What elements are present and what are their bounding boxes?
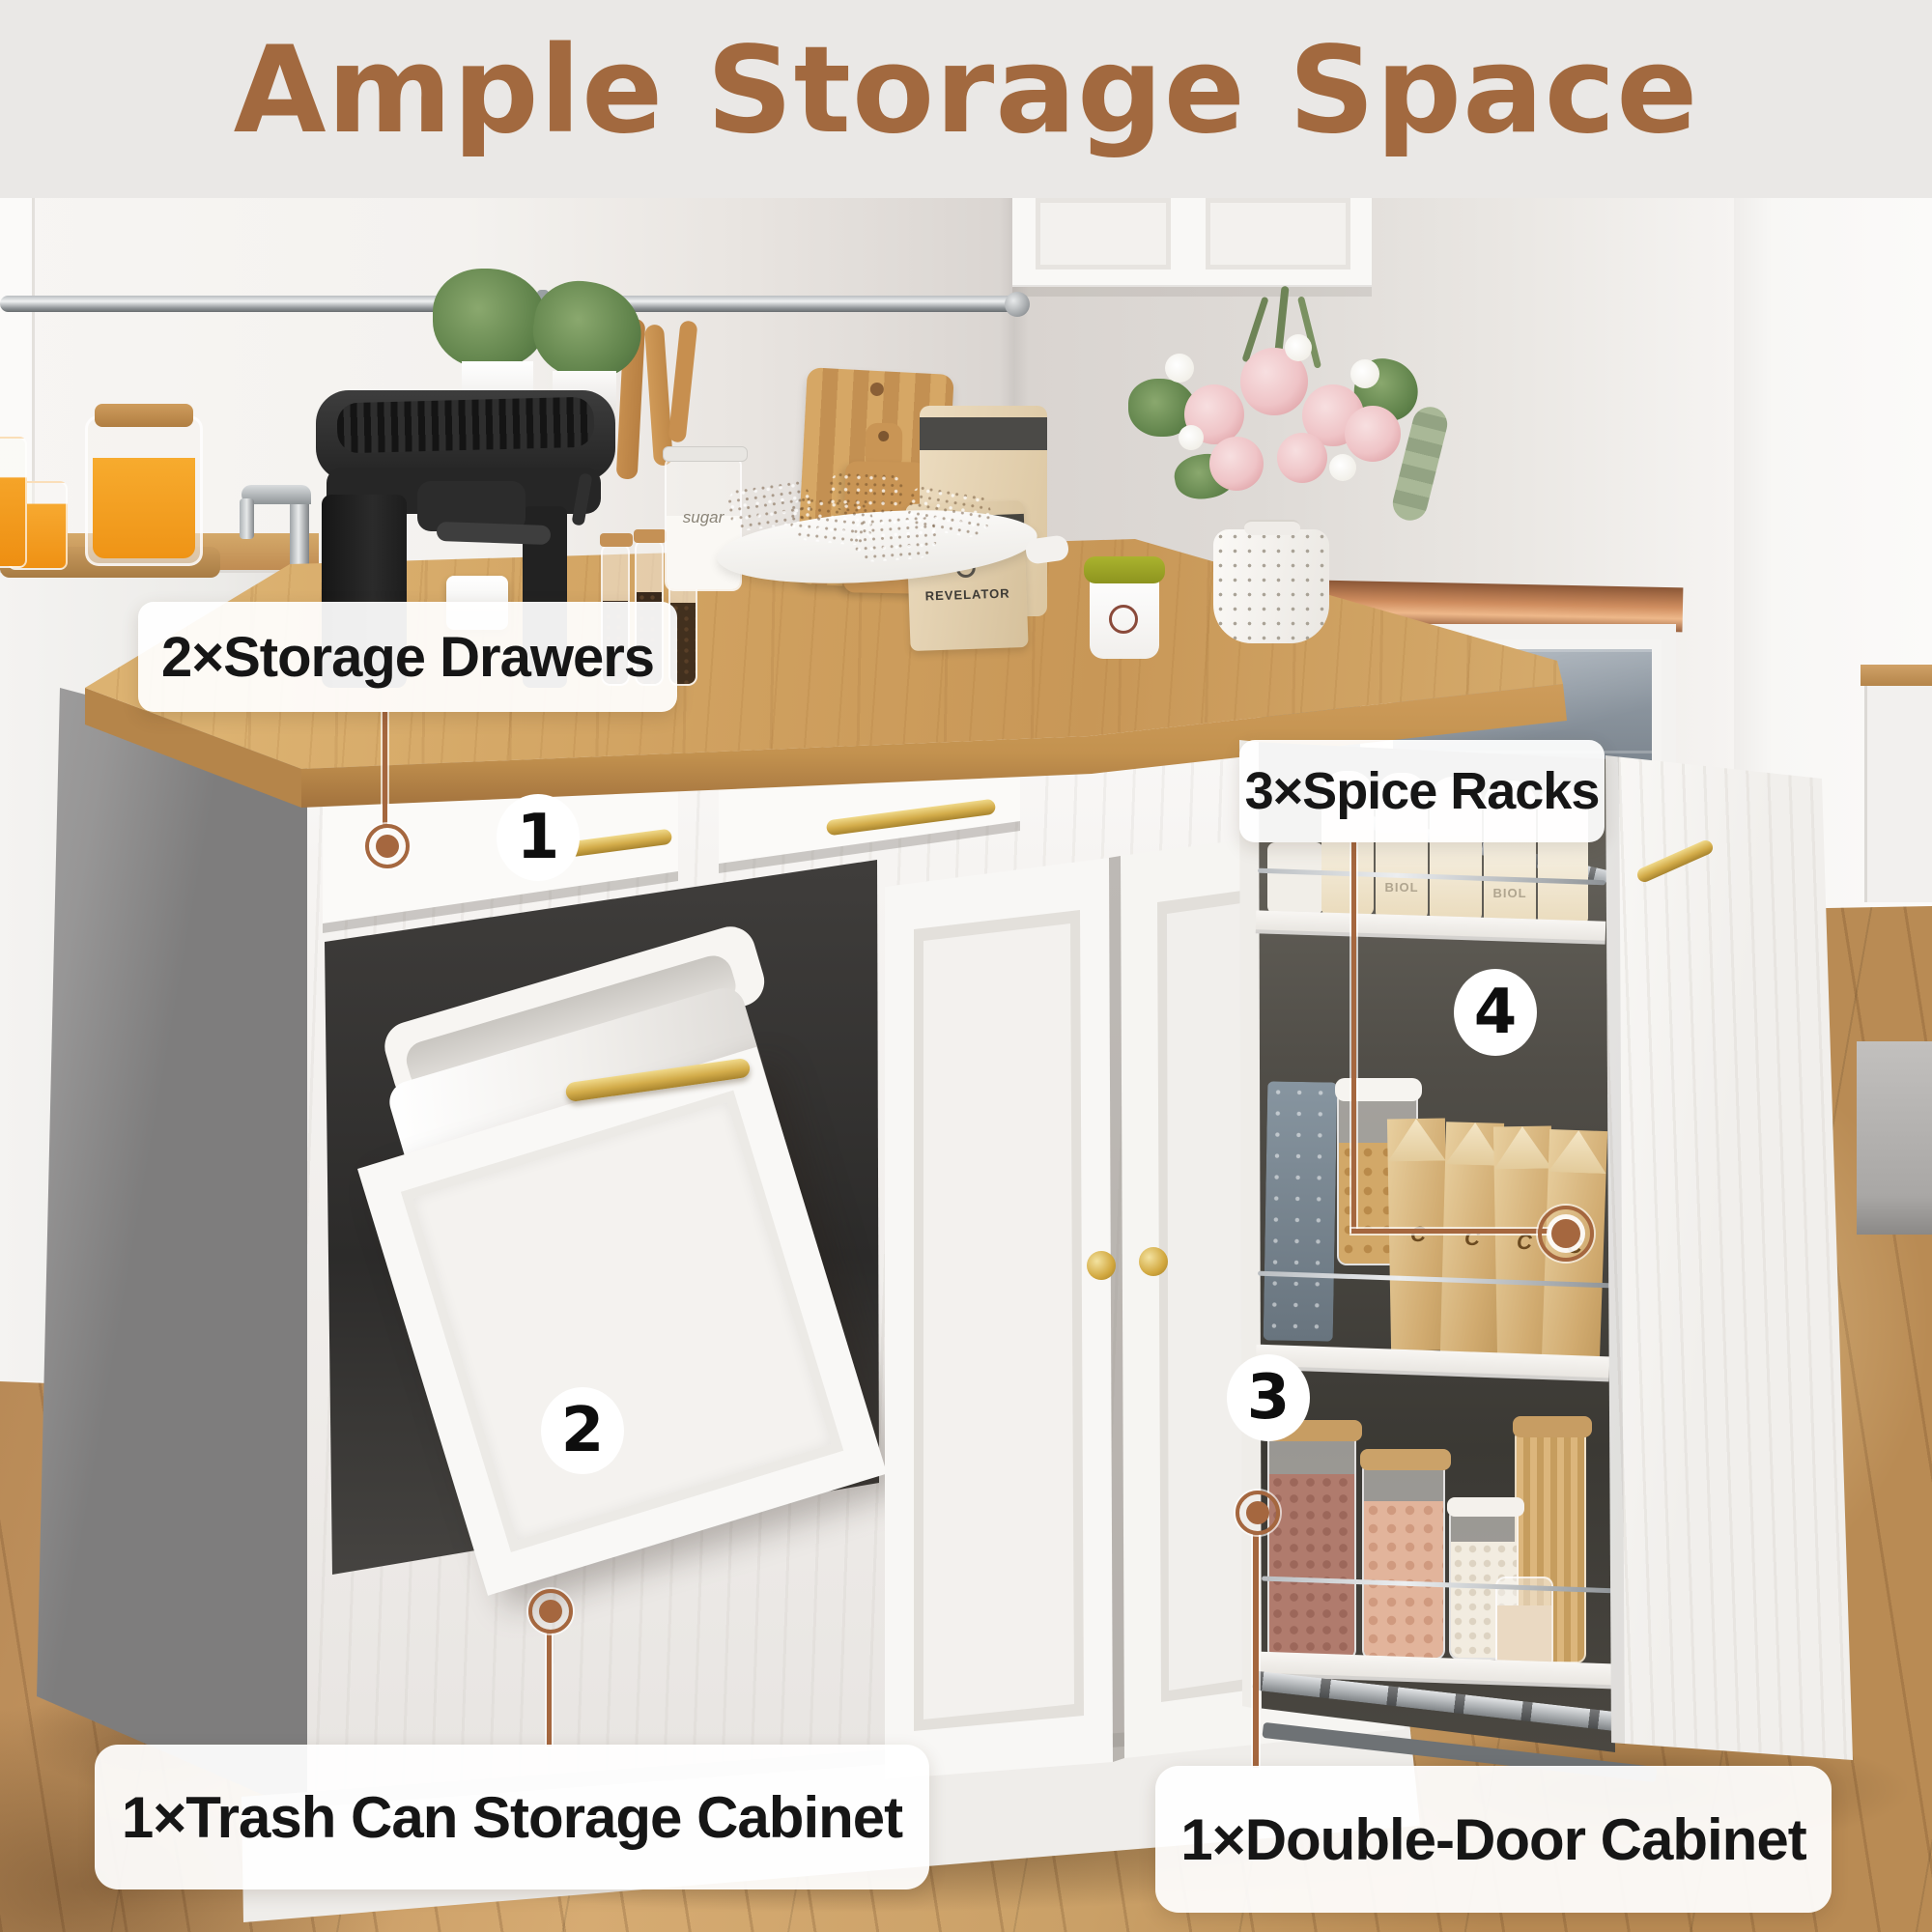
callout-marker-spice [1538,1206,1594,1262]
callout-marker-drawers [365,824,410,868]
flower-vase [1213,529,1329,643]
small-side-cabinet [1864,667,1932,902]
sugar-jar: sugar [665,456,742,591]
rose-flower [1345,406,1401,462]
storage-tin [1267,842,1323,914]
jar-of-almonds [1362,1461,1445,1660]
door-knob [1087,1251,1116,1280]
upper-cabinet-door-panel [1036,198,1171,270]
coffee-bag-brand: REVELATOR [908,585,1026,604]
babys-breath [1329,454,1356,481]
babys-breath [1285,334,1312,361]
rail-end-cap [1005,292,1030,317]
babys-breath [1179,425,1204,450]
label-trash-can-storage-cabinet: 1×Trash Can Storage Cabinet [95,1745,929,1889]
door-knob [1139,1247,1168,1276]
kitchen-island-storage-infographic: sugar REVELATOR BIOL BIOL [0,0,1932,1932]
cup-lid [1084,556,1165,583]
connector-line-drawers [383,712,387,828]
flower-vase-rim [1244,520,1300,535]
blue-storage-box [1264,1081,1338,1341]
page-title: Ample Storage Space [0,21,1932,160]
babys-breath [1350,359,1379,388]
juice-jar-content [93,458,195,558]
coffee-machine-portafilter [437,522,552,545]
upper-cabinet-shadow [1012,285,1372,297]
connector-line-trash [547,1633,552,1747]
label-storage-drawers: 2×Storage Drawers [138,602,677,712]
badge-1-storage-drawers: 1 [497,794,580,881]
rose-flower [1209,437,1264,491]
juice-glass [0,437,27,568]
badge-2-trash-cabinet: 2 [541,1387,624,1474]
badge-3-double-door-cabinet: 3 [1227,1354,1310,1441]
upper-cabinet-door-panel [1206,198,1350,270]
rose-flower [1277,433,1327,483]
callout-marker-trash [528,1589,573,1634]
label-spice-racks: 3×Spice Racks [1239,740,1605,842]
connector-line-doors [1253,1534,1259,1768]
babys-breath [1165,354,1194,383]
connector-line-spice-vertical [1351,842,1356,1231]
gray-base-cabinet [1857,1041,1932,1235]
potted-plant-foliage [433,269,547,369]
connector-line-spice-horizontal [1351,1229,1548,1234]
juice-jar-lid [95,404,193,427]
pastry [826,470,904,514]
faucet-nozzle [240,498,254,539]
callout-marker-doors [1236,1491,1280,1535]
jar-of-beans [1267,1432,1356,1660]
coffee-paper-bag: C [1387,1118,1449,1350]
coffee-machine-grid [336,397,594,454]
label-double-door-cabinet: 1×Double-Door Cabinet [1155,1766,1832,1913]
small-side-cabinet-top [1861,665,1932,686]
badge-4-spice-racks: 4 [1454,969,1537,1056]
